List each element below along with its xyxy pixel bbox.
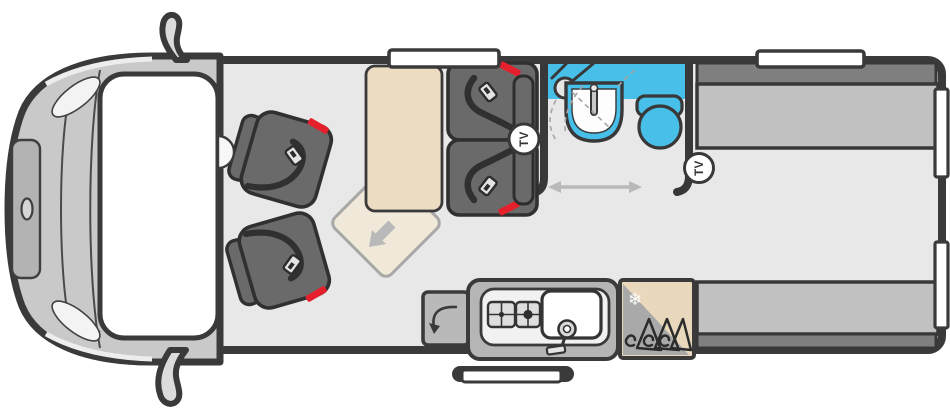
- snowflake-icon: ❄: [628, 290, 642, 310]
- rear-bench-bottom-cushion: [697, 282, 938, 334]
- entry-step: [452, 366, 574, 382]
- wardrobe-fridge: ❄: [620, 280, 694, 358]
- rear-bench-top-cushion: [697, 84, 938, 148]
- floorplan-stage: ❄ TV TV: [0, 0, 950, 420]
- dinette-table: [366, 66, 442, 211]
- hob-burner-left: [488, 302, 515, 327]
- window-top-right: [757, 51, 864, 67]
- badge-icon: [22, 199, 33, 220]
- tv-point-rear: TV: [685, 154, 714, 183]
- window-rear-upper: [935, 89, 948, 177]
- door-mirror-bottom: [158, 350, 186, 404]
- cab: [8, 56, 234, 362]
- hob-burner-right: [516, 302, 540, 327]
- tv-point-front: TV: [509, 124, 539, 154]
- rear-bench-bottom-backrest: [697, 334, 936, 348]
- basin-tap-head: [591, 85, 598, 92]
- floorplan-canvas: ❄ TV TV: [0, 0, 950, 420]
- window-top-left: [389, 50, 499, 67]
- toilet-bowl: [639, 106, 681, 148]
- tv-label: TV: [519, 131, 531, 147]
- tv-label: TV: [694, 160, 706, 176]
- worktop-flap: [423, 292, 469, 345]
- window-rear-lower: [935, 242, 948, 328]
- cab-roof-panel: [100, 74, 218, 338]
